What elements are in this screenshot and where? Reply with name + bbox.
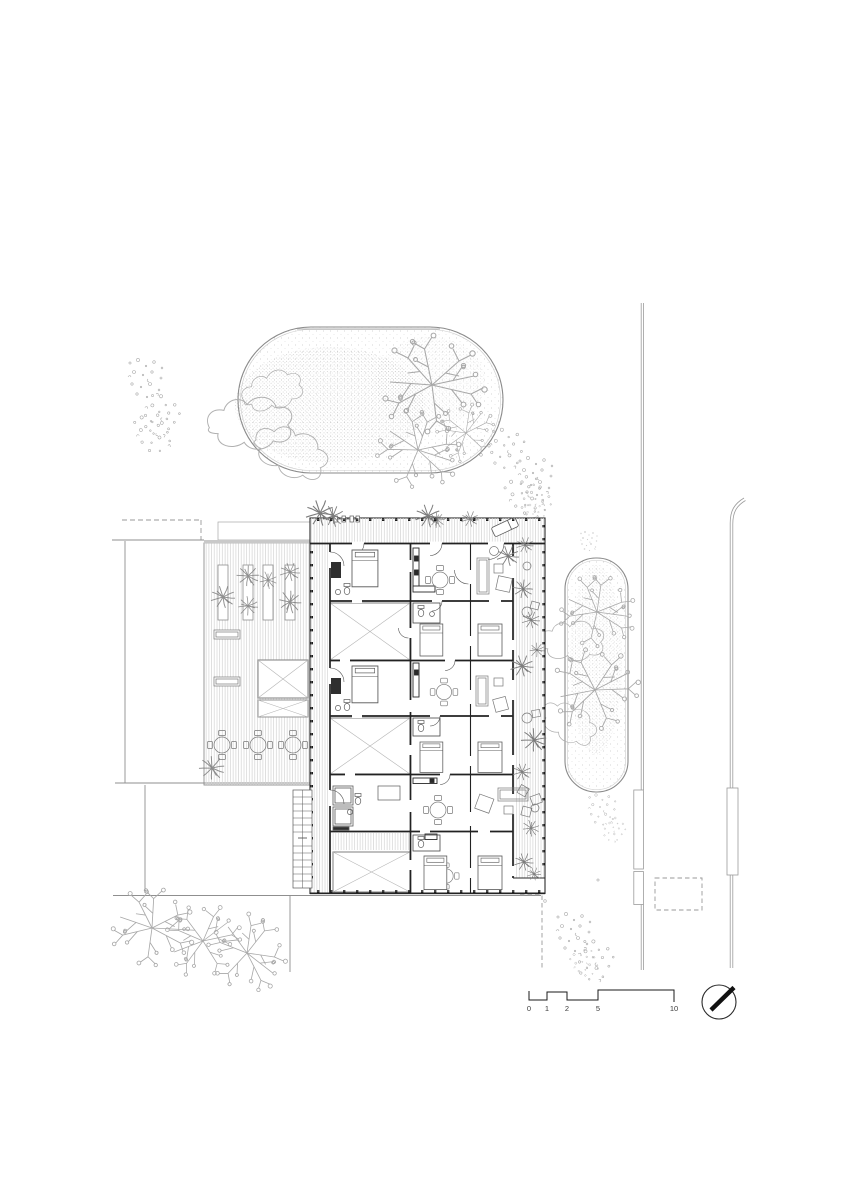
- south-east-scatter: [544, 879, 618, 986]
- scale-label-10: 10: [670, 1004, 678, 1013]
- shrub-scatter-west: [128, 358, 184, 456]
- scale-bar: 0 1 2 5 10: [527, 990, 678, 1013]
- north-arrow-needle: [711, 988, 734, 1011]
- street-edge-line: [634, 303, 644, 970]
- deck-top-wall: [204, 540, 310, 543]
- oval-garden: [208, 327, 508, 506]
- east-porch-deck: [513, 544, 545, 879]
- deck-skylight: [258, 660, 308, 717]
- south-deck-strip: [330, 833, 410, 850]
- north-arrow: [702, 985, 736, 1019]
- scale-label-1: 1: [545, 1004, 549, 1013]
- street-curved-line: [727, 498, 746, 968]
- exterior-stair: [293, 790, 312, 888]
- shrub-scatter-southeast-of-oval: [485, 426, 556, 527]
- scale-label-0: 0: [527, 1004, 531, 1013]
- site-plan-canvas: 0 1 2 5 10: [0, 0, 848, 1200]
- pill-planter: [534, 531, 650, 845]
- architectural-site-plan-sheet: 0 1 2 5 10: [0, 0, 848, 1200]
- left-deck-wing: [197, 522, 310, 785]
- washer: [331, 562, 341, 578]
- scale-bar-profile: [529, 990, 674, 1002]
- south-west-trees: [104, 878, 305, 1010]
- main-building: [293, 500, 549, 893]
- scale-label-2: 2: [565, 1004, 569, 1013]
- scale-label-5: 5: [596, 1004, 600, 1013]
